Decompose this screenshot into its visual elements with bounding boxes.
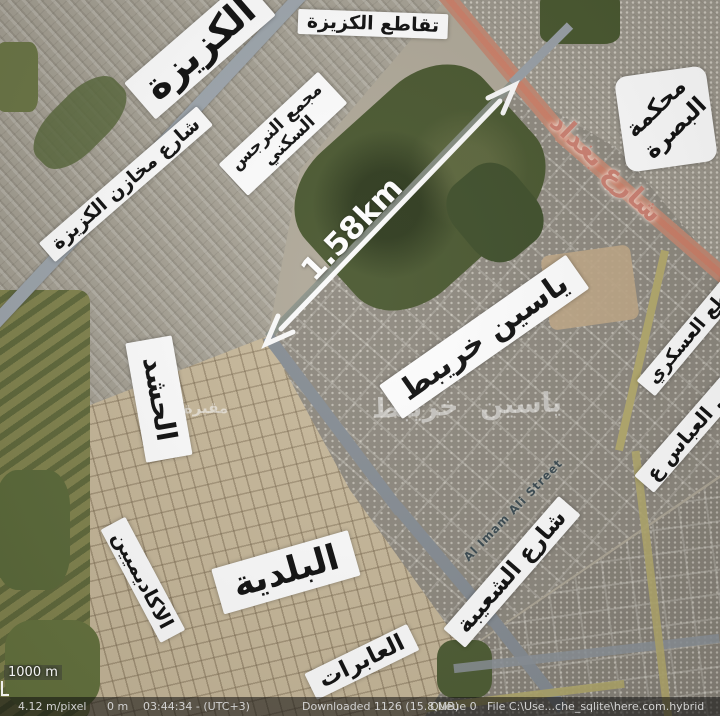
status-file-path: File C:\Use...che_sqlite\here.com.hybrid: [487, 700, 704, 713]
measurement-arrow[interactable]: [0, 0, 720, 716]
status-elevation: 0 m: [107, 700, 128, 713]
scale-bar: [1, 681, 9, 696]
status-bar: 4.12 m/pixel 0 m 03:44:34 - (UTC+3) Down…: [0, 697, 720, 716]
label-basra-court: محكمة البصرة: [614, 65, 718, 173]
status-time: 03:44:34 - (UTC+3): [143, 700, 250, 713]
map-viewport[interactable]: ياسين خريبط مقبرة شارع بغداد Al Imam Ali…: [0, 0, 720, 716]
label-kuzayza-intersection: تقاطع الكزيزة: [298, 9, 449, 39]
scale-label: 1000 m: [4, 665, 62, 680]
status-resolution: 4.12 m/pixel: [18, 700, 86, 713]
label-basra-court-text: محكمة البصرة: [619, 73, 712, 166]
app-window: ياسين خريبط مقبرة شارع بغداد Al Imam Ali…: [0, 0, 720, 716]
status-queue: Queue 0: [430, 700, 477, 713]
